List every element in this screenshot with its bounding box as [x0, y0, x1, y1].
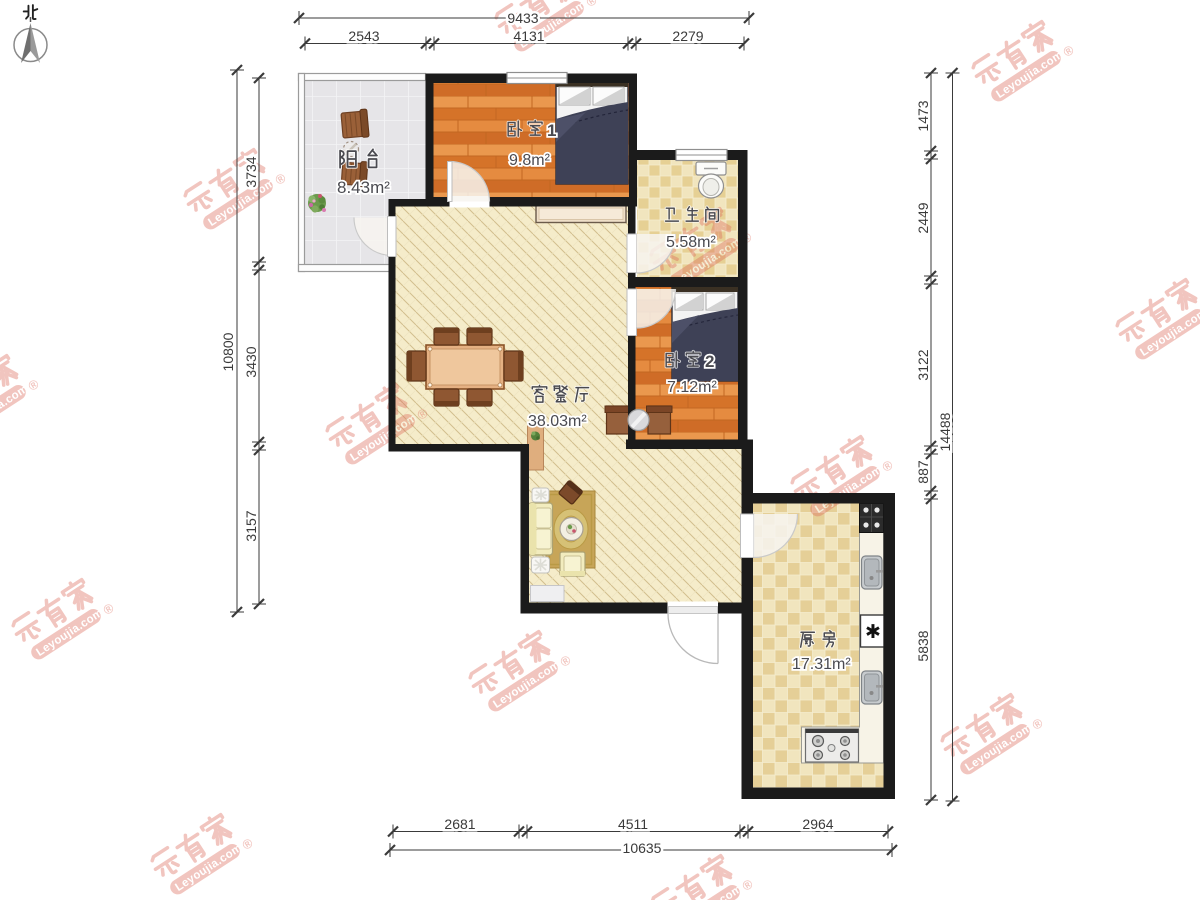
- svg-text:2449: 2449: [915, 202, 931, 233]
- svg-text:38.03m²: 38.03m²: [528, 413, 587, 430]
- svg-text:1473: 1473: [915, 100, 931, 131]
- svg-text:2279: 2279: [672, 28, 703, 44]
- svg-text:10800: 10800: [220, 332, 236, 371]
- svg-text:887: 887: [915, 460, 931, 484]
- svg-text:3122: 3122: [915, 349, 931, 380]
- svg-text:10635: 10635: [623, 840, 662, 856]
- svg-text:3734: 3734: [243, 156, 259, 187]
- svg-text:14488: 14488: [937, 412, 953, 451]
- svg-text:5838: 5838: [915, 630, 931, 661]
- svg-text:2964: 2964: [802, 816, 833, 832]
- svg-text:7.12m²: 7.12m²: [667, 379, 717, 396]
- svg-text:2: 2: [705, 352, 714, 371]
- svg-text:9433: 9433: [507, 10, 538, 26]
- svg-text:✱: ✱: [865, 622, 881, 643]
- svg-text:5.58m²: 5.58m²: [666, 234, 716, 251]
- svg-text:4131: 4131: [513, 28, 544, 44]
- svg-text:17.31m²: 17.31m²: [792, 656, 851, 673]
- svg-text:8.43m²: 8.43m²: [337, 178, 390, 197]
- svg-text:3157: 3157: [243, 510, 259, 541]
- svg-text:3430: 3430: [243, 346, 259, 377]
- svg-text:2543: 2543: [348, 28, 379, 44]
- svg-text:1: 1: [547, 121, 556, 140]
- svg-text:4511: 4511: [618, 816, 648, 832]
- svg-text:2681: 2681: [444, 816, 475, 832]
- svg-text:9.8m²: 9.8m²: [509, 152, 551, 169]
